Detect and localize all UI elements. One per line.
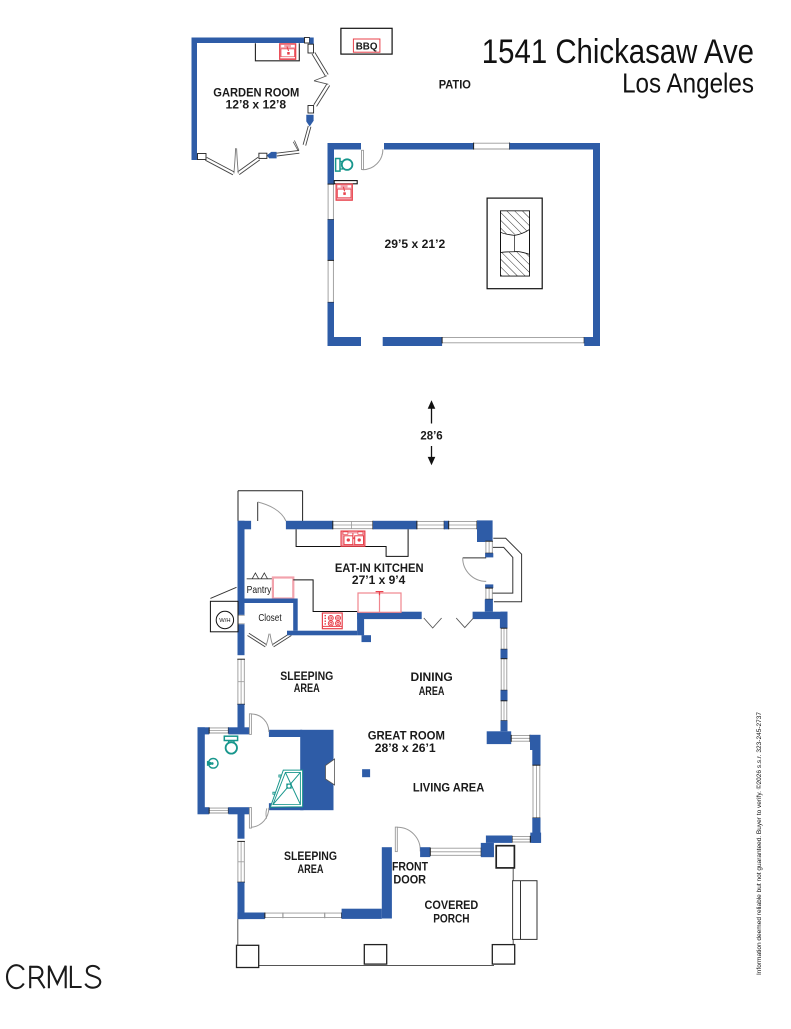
svg-text:AREA: AREA: [294, 682, 320, 695]
svg-text:FRONT: FRONT: [392, 861, 428, 874]
svg-text:DOOR: DOOR: [393, 874, 426, 887]
svg-text:COVERED: COVERED: [425, 899, 479, 912]
svg-text:W/H: W/H: [219, 618, 230, 624]
svg-text:AREA: AREA: [298, 863, 324, 876]
svg-text:LIVING AREA: LIVING AREA: [413, 781, 485, 794]
svg-text:29’5 x 21’2: 29’5 x 21’2: [385, 238, 446, 251]
svg-text:1541 Chickasaw Ave: 1541 Chickasaw Ave: [482, 33, 754, 71]
svg-text:28’6: 28’6: [420, 430, 443, 443]
svg-text:PORCH: PORCH: [433, 912, 469, 925]
svg-text:12’8 x 12’8: 12’8 x 12’8: [226, 98, 287, 111]
svg-text:PATIO: PATIO: [439, 78, 472, 92]
svg-text:Pantry: Pantry: [247, 585, 272, 596]
svg-text:Los Angeles: Los Angeles: [622, 68, 754, 99]
svg-text:BBQ: BBQ: [356, 41, 378, 52]
svg-text:GREAT ROOM: GREAT ROOM: [368, 729, 445, 742]
svg-text:Information deemed reliable bu: Information deemed reliable but not guar…: [755, 712, 763, 975]
svg-text:SLEEPING: SLEEPING: [284, 850, 337, 863]
svg-text:27’1 x 9’4: 27’1 x 9’4: [352, 574, 406, 587]
svg-text:AREA: AREA: [419, 685, 445, 698]
svg-text:DINING: DINING: [411, 671, 453, 684]
svg-text:28’8 x 26’1: 28’8 x 26’1: [375, 742, 436, 755]
svg-text:Closet: Closet: [258, 613, 281, 624]
